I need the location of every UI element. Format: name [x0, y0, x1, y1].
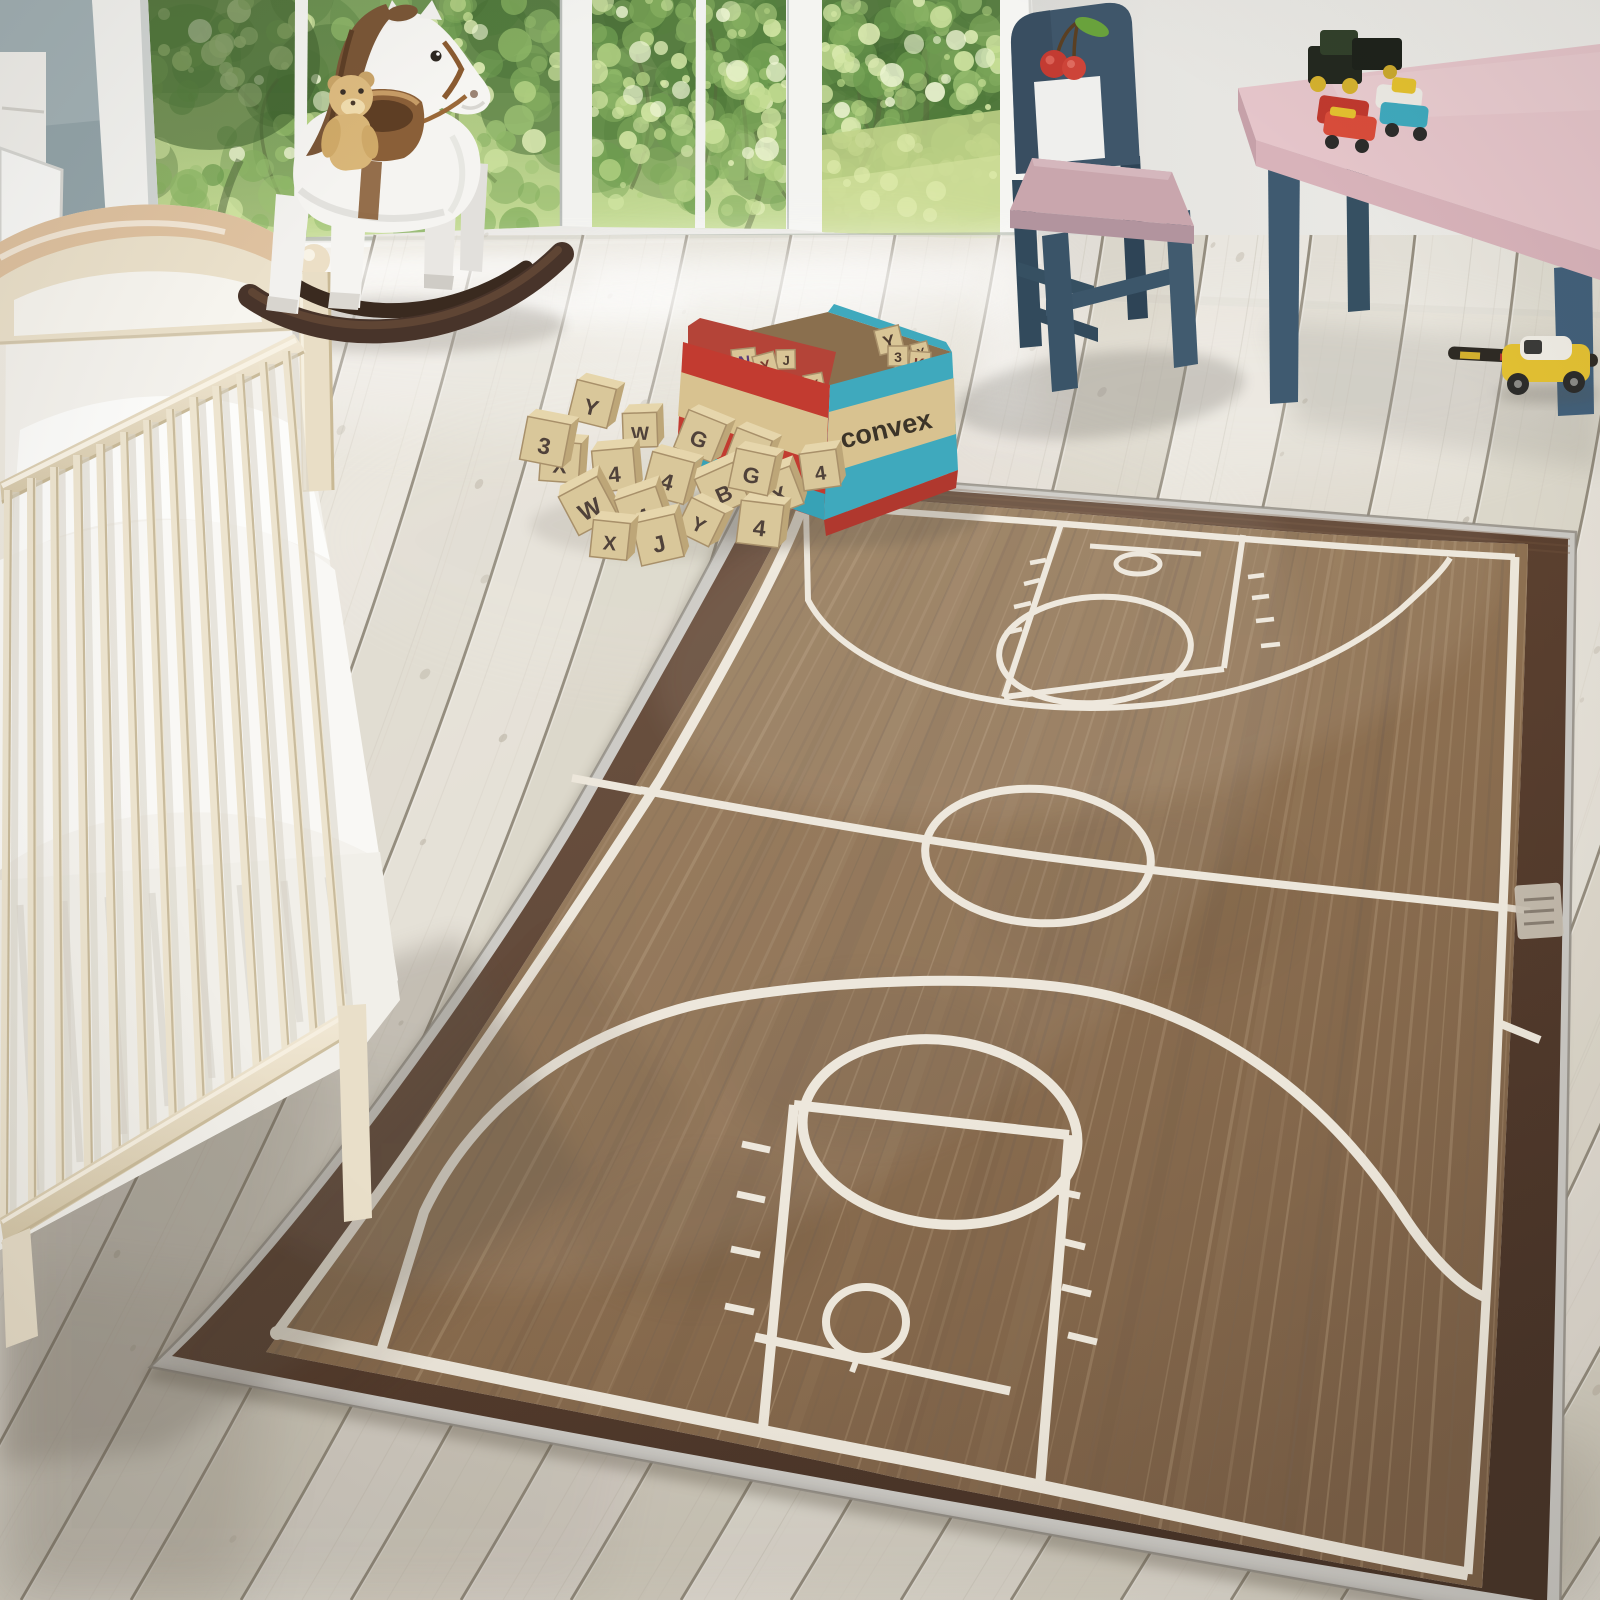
svg-text:J: J — [782, 353, 789, 368]
svg-text:3: 3 — [894, 349, 902, 365]
